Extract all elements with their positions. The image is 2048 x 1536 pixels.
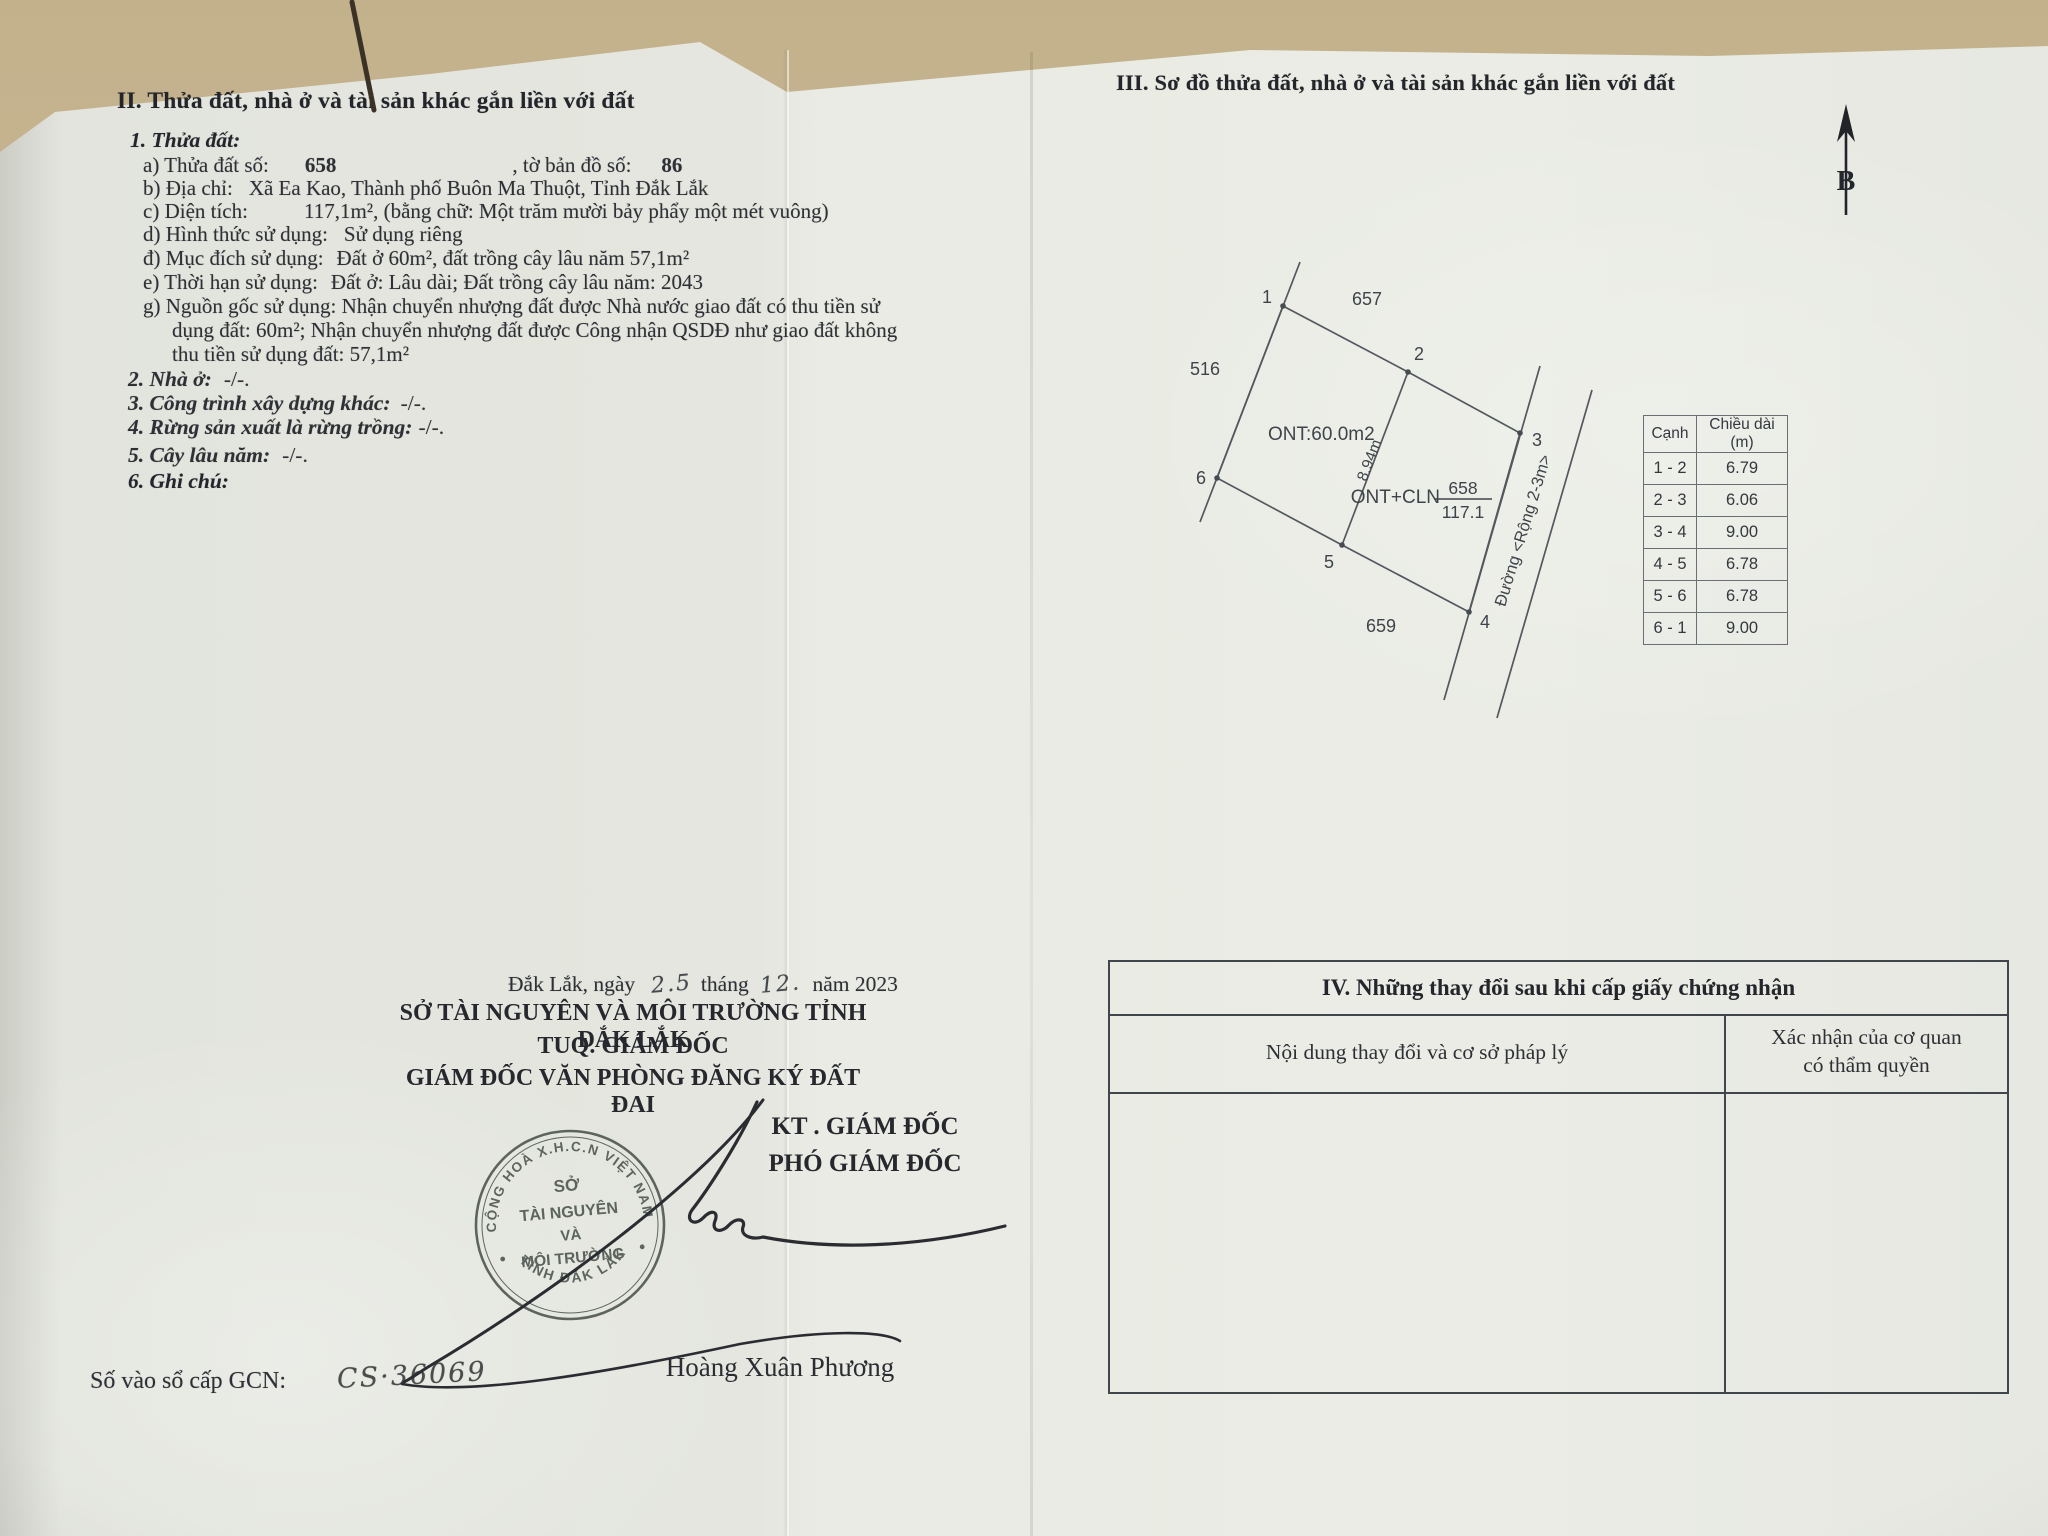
parcel-number-label: a) Thửa đất số: [143, 153, 269, 177]
edge-table-row: 6 - 19.00 [1644, 613, 1788, 645]
line-item3-constructions: 3. Công trình xây dựng khác:-/-. [128, 391, 426, 416]
length-cell: 6.78 [1697, 549, 1788, 581]
line-item4-forest: 4. Rừng sản xuất là rừng trồng:-/-. [128, 415, 444, 440]
date-prefix: Đắk Lắk, ngày [508, 972, 635, 996]
item4-label: 4. Rừng sản xuất là rừng trồng: [128, 415, 412, 439]
length-cell: 6.78 [1697, 581, 1788, 613]
line-item2-house: 2. Nhà ở:-/-. [128, 367, 249, 392]
section4-col2-line2: có thẩm quyền [1803, 1052, 1930, 1080]
section2-title: II. Thửa đất, nhà ở và tài sản khác gắn … [117, 88, 635, 115]
edge-length-table: Cạnh Chiều dài (m) 1 - 26.79 2 - 36.06 3… [1643, 415, 1788, 645]
edge-cell: 5 - 6 [1644, 581, 1697, 613]
photo-of-land-certificate: II. Thửa đất, nhà ở và tài sản khác gắn … [0, 0, 2048, 1536]
map-sheet-value: 86 [661, 153, 682, 177]
section3-title: III. Sơ đồ thửa đất, nhà ở và tài sản kh… [1116, 70, 1675, 96]
section4-col1-header: Nội dung thay đổi và cơ sở pháp lý [1110, 1014, 1724, 1090]
item2-value: -/-. [224, 367, 250, 391]
item3-label: 3. Công trình xây dựng khác: [128, 391, 391, 415]
use-purpose-label: đ) Mục đích sử dụng: [143, 246, 324, 270]
item5-value: -/-. [282, 443, 308, 467]
seal-center-line2: TÀI NGUYÊN [519, 1198, 619, 1226]
office-director-line: GIÁM ĐỐC VĂN PHÒNG ĐĂNG KÝ ĐẤT ĐAI [398, 1065, 868, 1119]
line-address: b) Địa chỉ:Xã Ea Kao, Thành phố Buôn Ma … [143, 176, 708, 201]
edge-cell: 1 - 2 [1644, 453, 1697, 485]
edge-cell: 6 - 1 [1644, 613, 1697, 645]
edge-table-header-length: Chiều dài (m) [1697, 416, 1788, 453]
area-label: c) Diện tích: [143, 199, 248, 223]
line-use-form: d) Hình thức sử dụng:Sử dụng riêng [143, 222, 463, 247]
date-mid: tháng [701, 972, 749, 996]
seal-center-line1: SỞ [553, 1175, 581, 1196]
length-cell: 6.06 [1697, 485, 1788, 517]
edge-table-header-row: Cạnh Chiều dài (m) [1644, 416, 1788, 453]
line-use-purpose: đ) Mục đích sử dụng:Đất ở 60m², đất trồn… [143, 246, 689, 271]
line-item6-notes: 6. Ghi chú: [128, 469, 229, 494]
area-words: , (bằng chữ: Một trăm mười bảy phẩy một … [373, 199, 829, 223]
length-cell: 9.00 [1697, 613, 1788, 645]
seal-dot-right [640, 1244, 645, 1249]
section4-title: IV. Những thay đổi sau khi cấp giấy chứn… [1110, 962, 2007, 1014]
edge-cell: 3 - 4 [1644, 517, 1697, 549]
parcel-number-value: 658 [305, 153, 337, 177]
address-label: b) Địa chỉ: [143, 176, 233, 200]
date-suffix: năm 2023 [812, 972, 897, 996]
use-term-value: Đất ở: Lâu dài; Đất trồng cây lâu năm: 2… [331, 270, 703, 294]
tuq-line: TUQ. GIÁM ĐỐC [398, 1033, 868, 1060]
line-origin-1: g) Nguồn gốc sử dụng: Nhận chuyển nhượng… [143, 294, 880, 319]
edge-cell: 4 - 5 [1644, 549, 1697, 581]
handwritten-month: 12. [759, 970, 802, 998]
area-value: 117,1m² [304, 199, 373, 223]
section4-changes-table: IV. Những thay đổi sau khi cấp giấy chứn… [1108, 960, 2009, 1394]
length-cell: 9.00 [1697, 517, 1788, 549]
handwritten-day: 2.5 [650, 970, 693, 998]
use-form-value: Sử dụng riêng [344, 222, 463, 246]
line-origin-2: dụng đất: 60m²; Nhận chuyển nhượng đất đ… [172, 318, 897, 343]
seal-center-line3: VÀ [560, 1226, 582, 1245]
section4-col2-header: Xác nhận của cơ quan có thẩm quyền [1726, 1014, 2007, 1090]
edge-table-row: 1 - 26.79 [1644, 453, 1788, 485]
section4-column-divider [1724, 1014, 1726, 1392]
gcn-register-label: Số vào sổ cấp GCN: [90, 1368, 286, 1395]
edge-table-row: 5 - 66.78 [1644, 581, 1788, 613]
item2-label: 2. Nhà ở: [128, 367, 212, 391]
seal-dot-left [500, 1256, 505, 1261]
edge-table-row: 4 - 56.78 [1644, 549, 1788, 581]
map-sheet-label: , tờ bản đồ số: [512, 153, 631, 177]
address-value: Xã Ea Kao, Thành phố Buôn Ma Thuột, Tỉnh… [249, 176, 709, 200]
deputy-director-line: PHÓ GIÁM ĐỐC [745, 1150, 985, 1178]
section4-col2-line1: Xác nhận của cơ quan [1771, 1024, 1961, 1052]
item5-label: 5. Cây lâu năm: [128, 443, 270, 467]
line-area: c) Diện tích:117,1m², (bằng chữ: Một tră… [143, 199, 829, 224]
section2-item1-label: 1. Thửa đất: [130, 128, 240, 153]
length-cell: 6.79 [1697, 453, 1788, 485]
edge-cell: 2 - 3 [1644, 485, 1697, 517]
date-line: Đắk Lắk, ngày 2.5 tháng 12. năm 2023 [508, 972, 898, 997]
kt-director-line: KT . GIÁM ĐỐC [745, 1113, 985, 1141]
official-seal: CỘNG HOÀ X.H.C.N VIỆT NAM TỈNH ĐẮK LẮK S… [462, 1117, 679, 1334]
signer-name: Hoàng Xuân Phương [650, 1352, 910, 1383]
line-origin-3: thu tiền sử dụng đất: 57,1m² [172, 342, 409, 367]
edge-table-row: 2 - 36.06 [1644, 485, 1788, 517]
use-form-label: d) Hình thức sử dụng: [143, 222, 328, 246]
use-purpose-value: Đất ở 60m², đất trồng cây lâu năm 57,1m² [337, 246, 690, 270]
line-use-term: e) Thời hạn sử dụng:Đất ở: Lâu dài; Đất … [143, 270, 703, 295]
line-item5-perennial: 5. Cây lâu năm:-/-. [128, 443, 308, 468]
use-term-label: e) Thời hạn sử dụng: [143, 270, 318, 294]
item3-value: -/-. [401, 391, 427, 415]
line-parcel-number: a) Thửa đất số:658, tờ bản đồ số:86 [143, 153, 682, 178]
edge-table-header-edge: Cạnh [1644, 416, 1697, 453]
item4-value: -/-. [418, 415, 444, 439]
edge-table-row: 3 - 49.00 [1644, 517, 1788, 549]
